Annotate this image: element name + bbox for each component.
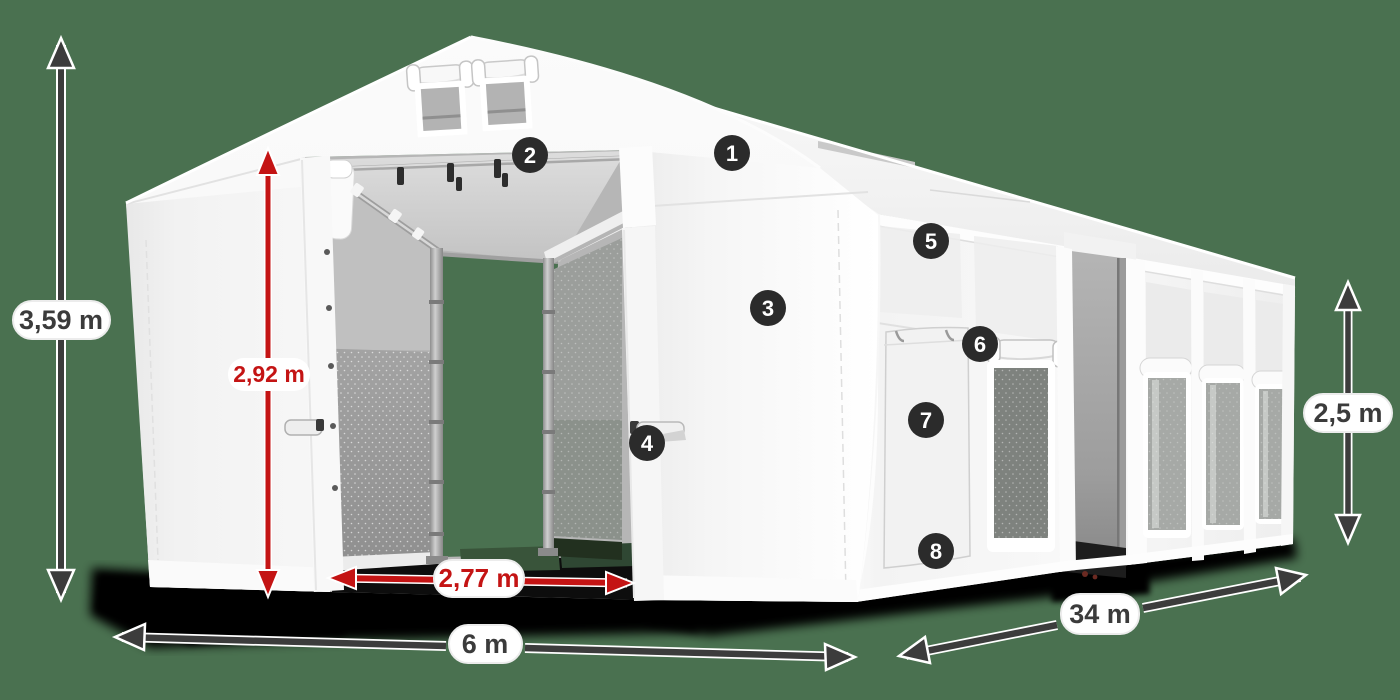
svg-text:2,5 m: 2,5 m bbox=[1313, 398, 1382, 428]
svg-text:7: 7 bbox=[920, 408, 932, 433]
svg-text:6: 6 bbox=[974, 332, 986, 357]
svg-text:3: 3 bbox=[762, 296, 774, 321]
svg-text:34 m: 34 m bbox=[1069, 599, 1131, 629]
svg-text:2,77 m: 2,77 m bbox=[439, 563, 520, 593]
svg-text:1: 1 bbox=[726, 141, 738, 166]
svg-text:5: 5 bbox=[925, 229, 937, 254]
svg-text:4: 4 bbox=[641, 431, 654, 456]
svg-text:2,92 m: 2,92 m bbox=[233, 361, 305, 387]
svg-text:8: 8 bbox=[930, 539, 942, 564]
svg-text:3,59 m: 3,59 m bbox=[19, 305, 103, 335]
svg-text:2: 2 bbox=[524, 143, 536, 168]
svg-text:6 m: 6 m bbox=[462, 629, 509, 659]
